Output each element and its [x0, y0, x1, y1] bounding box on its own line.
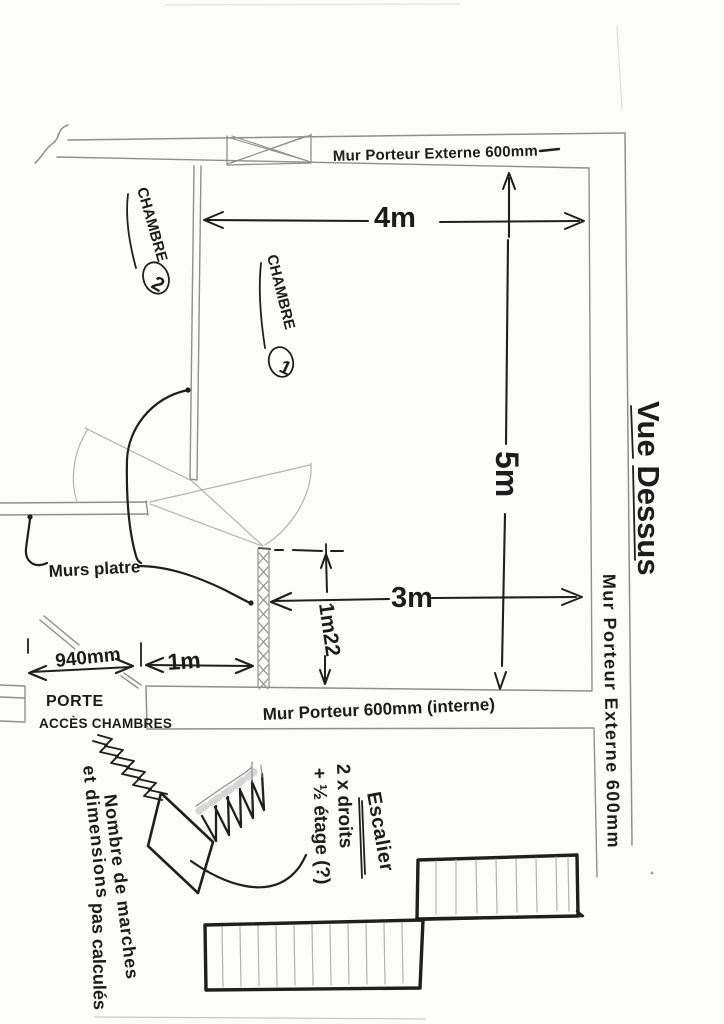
svg-text:ACCÈS CHAMBRES: ACCÈS CHAMBRES: [39, 716, 172, 731]
svg-text:PORTE: PORTE: [46, 693, 104, 710]
svg-text:pas calculés: pas calculés: [88, 903, 110, 1010]
svg-text:+ ½ étage (?): + ½ étage (?): [308, 767, 333, 884]
svg-text:4m: 4m: [374, 202, 416, 234]
svg-text:Vue Dessus: Vue Dessus: [631, 401, 666, 576]
svg-text:2 x droits: 2 x droits: [332, 763, 356, 848]
svg-text:1m: 1m: [167, 647, 202, 675]
svg-text:3m: 3m: [391, 582, 433, 614]
svg-text:5m: 5m: [489, 451, 525, 497]
